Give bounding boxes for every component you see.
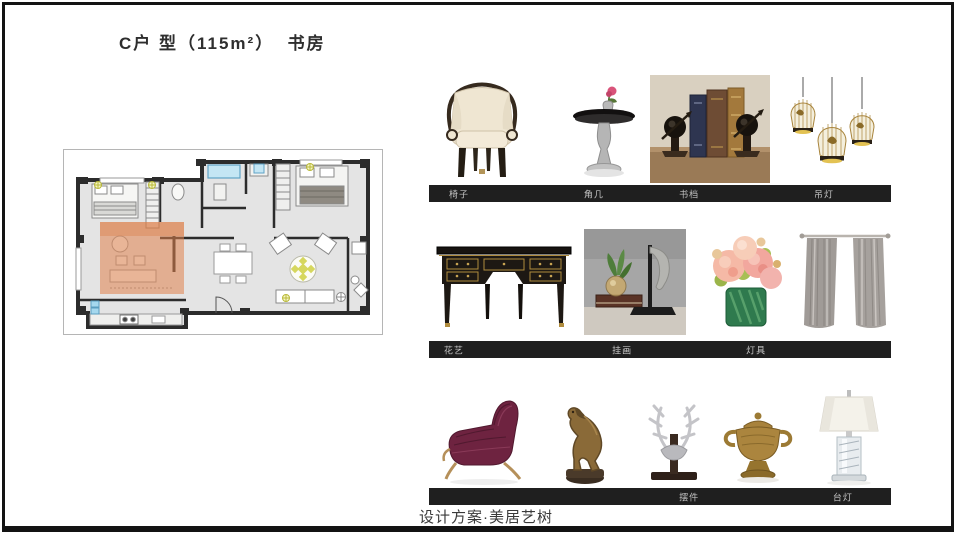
crystal-table-lamp-illustration (811, 389, 887, 486)
product-image-armchair (437, 79, 527, 188)
product-image-flower-arrangement (699, 232, 793, 339)
product-image-bronze-horse-statue (553, 395, 617, 491)
side-table-illustration (563, 85, 645, 183)
product-label: 台灯 (833, 490, 853, 503)
plant-and-sculpture-illustration (584, 229, 686, 335)
page-title: C户 型（115m²） 书房 (119, 29, 326, 54)
antler-ornament-illustration (641, 398, 707, 486)
product-image-bookends (650, 75, 770, 188)
velvet-lounge-chair-illustration (436, 393, 532, 486)
product-image-side-table (563, 85, 645, 188)
product-label: 角几 (584, 187, 604, 200)
label-bar-row1: 椅子 角几 书档 吊灯 (429, 185, 891, 202)
product-image-brass-urn (719, 409, 797, 491)
footer-caption: 设计方案·美居艺树 (419, 506, 553, 527)
product-label: 摆件 (679, 490, 699, 503)
label-bar-row3: 摆件 台灯 (429, 488, 891, 505)
product-image-writing-desk (433, 231, 575, 338)
product-image-plant-and-sculpture (584, 229, 686, 340)
curtains-illustration (799, 229, 891, 335)
product-image-antler-ornament (641, 398, 707, 491)
product-image-pendant-lamps (782, 77, 878, 188)
floor-plan-panel (63, 149, 383, 335)
product-image-velvet-lounge-chair (436, 393, 532, 491)
product-label: 书档 (679, 187, 699, 200)
product-label: 椅子 (449, 187, 469, 200)
design-board-slide: C户 型（115m²） 书房 (2, 2, 954, 532)
brass-urn-illustration (719, 409, 797, 486)
product-image-crystal-table-lamp (811, 389, 887, 491)
bookends-illustration (650, 75, 770, 183)
product-image-curtains (799, 229, 891, 340)
floor-plan-illustration (64, 150, 380, 332)
label-bar-row2: 花艺 挂画 灯具 (429, 341, 891, 358)
product-label: 挂画 (612, 343, 632, 356)
writing-desk-illustration (433, 231, 575, 333)
pendant-lamps-illustration (782, 77, 878, 183)
product-label: 花艺 (444, 343, 464, 356)
bronze-horse-statue-illustration (553, 395, 617, 486)
armchair-illustration (437, 79, 527, 183)
flower-arrangement-illustration (699, 232, 793, 334)
product-label: 灯具 (746, 343, 766, 356)
product-label: 吊灯 (814, 187, 834, 200)
